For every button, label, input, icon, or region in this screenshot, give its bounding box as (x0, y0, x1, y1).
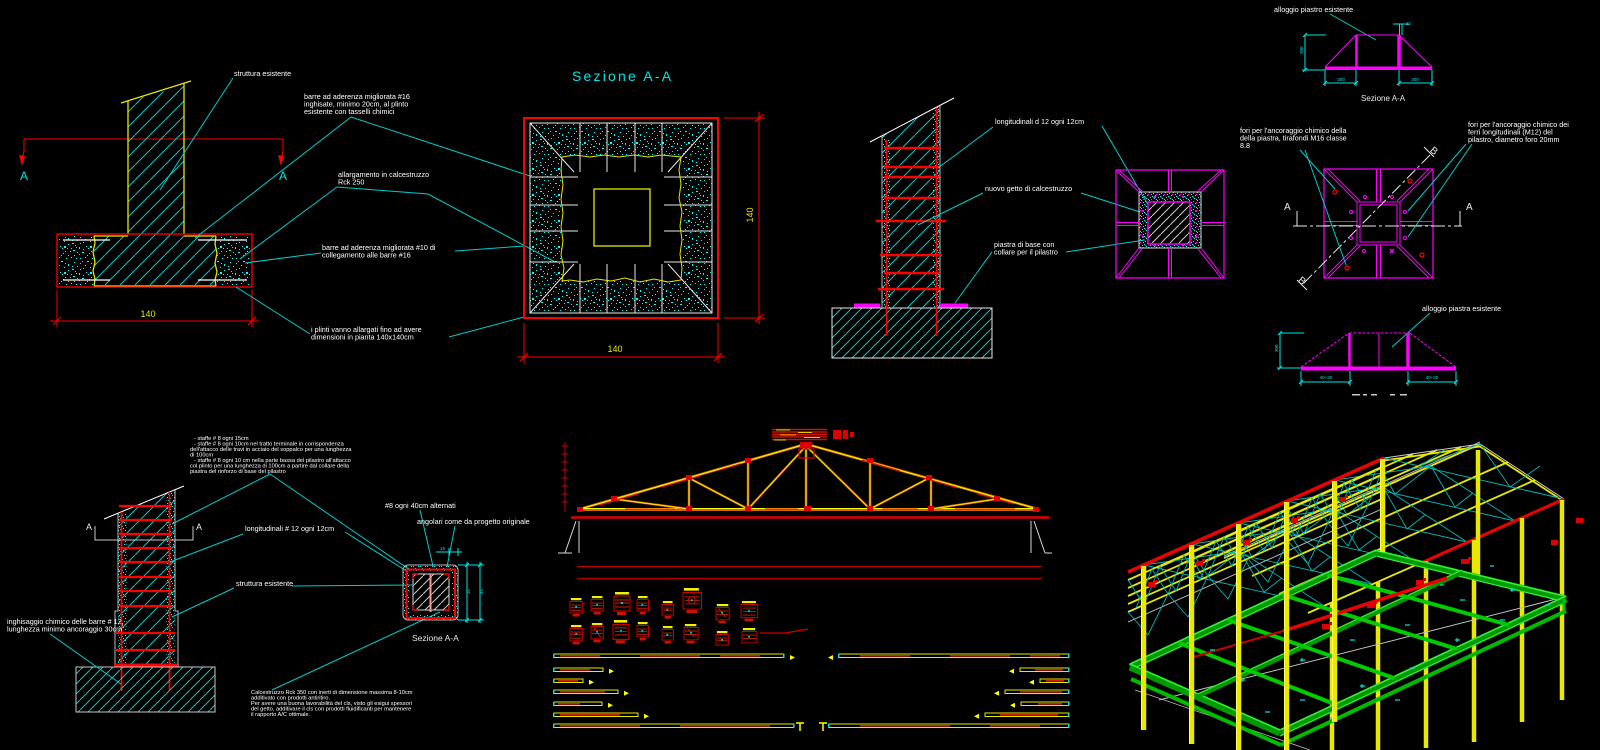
svg-text:15: 15 (440, 546, 446, 551)
svg-text:longitudinali # 12 ogni 12cm: longitudinali # 12 ogni 12cm (245, 524, 334, 533)
svg-text:40+20: 40+20 (1320, 375, 1333, 380)
svg-text:12: 12 (1406, 21, 1412, 26)
svg-text:#8 ogni 40cm alternati: #8 ogni 40cm alternati (385, 501, 456, 510)
svg-text:A: A (1284, 202, 1291, 213)
svg-text:A: A (1466, 202, 1473, 213)
svg-text:A: A (20, 169, 28, 183)
svg-text:dell'attacco delle travi in ac: dell'attacco delle travi in acciaio del … (190, 447, 352, 453)
svg-text:struttura esistente: struttura esistente (236, 579, 293, 588)
svg-text:pilastro, diametro foro 20mm: pilastro, diametro foro 20mm (1468, 135, 1559, 144)
svg-text:collegamento alle barre #16: collegamento alle barre #16 (322, 251, 411, 260)
svg-text:Sezione A-A: Sezione A-A (1361, 94, 1406, 103)
svg-text:alloggio piastro esistente: alloggio piastro esistente (1274, 5, 1353, 14)
svg-text:40+20: 40+20 (1426, 375, 1439, 380)
svg-text:Rck 250: Rck 250 (338, 178, 364, 187)
svg-text:nuovo getto di calcestruzzo: nuovo getto di calcestruzzo (985, 184, 1072, 193)
svg-text:35: 35 (466, 588, 471, 594)
svg-text:esistente con tasselli chimici: esistente con tasselli chimici (304, 107, 395, 116)
svg-text:lunghezza minimo ancoraggio 30: lunghezza minimo ancoraggio 30cm (7, 625, 122, 634)
svg-text:longitudinali d 12 ogni 12cm: longitudinali d 12 ogni 12cm (995, 117, 1084, 126)
svg-text:300: 300 (1299, 46, 1304, 54)
svg-text:struttura esistente: struttura esistente (234, 69, 291, 78)
svg-text:140: 140 (607, 344, 622, 354)
svg-text:300: 300 (1337, 77, 1345, 82)
svg-text:piastra del rinforzo di base d: piastra del rinforzo di base del pilastr… (190, 469, 286, 475)
svg-text:il rapporto A/C ottimale.: il rapporto A/C ottimale. (251, 712, 311, 718)
svg-text:alloggio piastra esistente: alloggio piastra esistente (1422, 304, 1501, 313)
svg-text:45: 45 (479, 588, 484, 594)
svg-text:300: 300 (1274, 344, 1279, 352)
svg-text:140: 140 (745, 207, 755, 222)
svg-text:300: 300 (1411, 77, 1419, 82)
svg-text:8.8: 8.8 (1240, 141, 1250, 150)
svg-text:Sezione A-A: Sezione A-A (572, 68, 673, 84)
svg-text:A: A (279, 169, 287, 183)
svg-text:140: 140 (140, 309, 155, 319)
svg-text:collare per il pilastro: collare per il pilastro (994, 248, 1058, 257)
svg-text:Sezione A-A: Sezione A-A (412, 633, 459, 643)
svg-text:della piastra, tirafondi M16 c: della piastra, tirafondi M16 classe (1240, 134, 1347, 143)
svg-text:A: A (196, 522, 202, 532)
svg-text:A: A (86, 522, 92, 532)
svg-text:dimensioni in pianta 140x140cm: dimensioni in pianta 140x140cm (311, 333, 414, 342)
svg-text:angolari come da progetto orig: angolari come da progetto originale (417, 517, 530, 526)
